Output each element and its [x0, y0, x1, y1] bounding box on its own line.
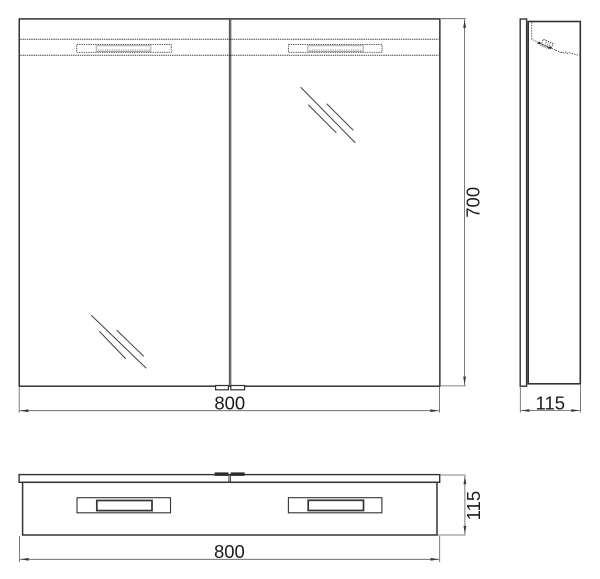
- svg-text:115: 115: [463, 491, 484, 520]
- svg-text:700: 700: [463, 187, 484, 218]
- svg-text:115: 115: [536, 392, 566, 413]
- svg-text:800: 800: [214, 541, 245, 562]
- svg-text:800: 800: [214, 393, 245, 414]
